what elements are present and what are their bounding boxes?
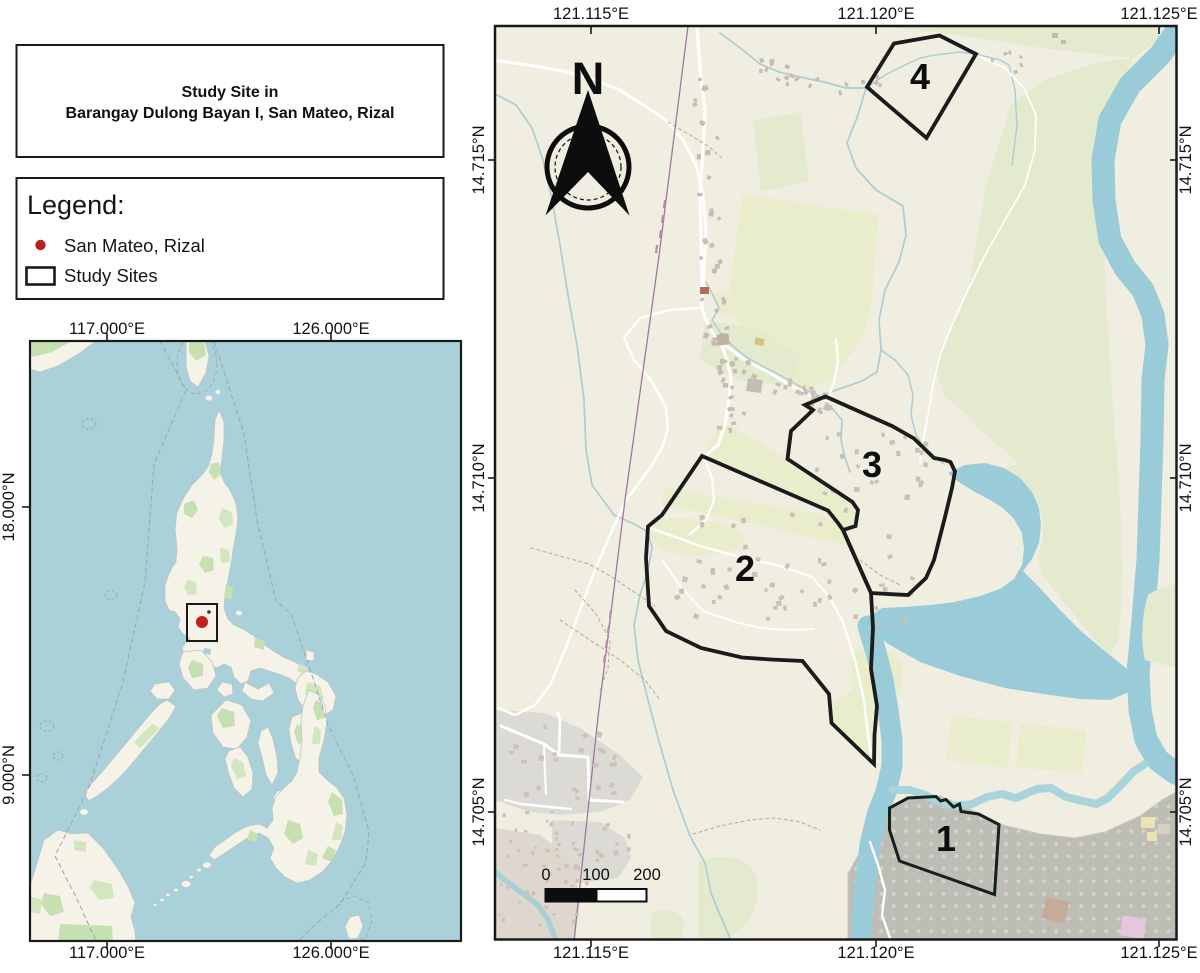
svg-text:121.115°E: 121.115°E [553,944,629,962]
svg-text:2: 2 [735,548,755,589]
svg-text:14.715°N: 14.715°N [470,126,488,195]
svg-text:14.715°N: 14.715°N [1177,126,1195,195]
svg-text:126.000°E: 126.000°E [292,320,369,338]
svg-text:San Mateo, Rizal: San Mateo, Rizal [64,235,205,256]
svg-text:3: 3 [862,444,882,485]
svg-text:121.120°E: 121.120°E [837,5,914,23]
svg-text:121.125°E: 121.125°E [1120,944,1197,962]
svg-text:Barangay Dulong Bayan I, San M: Barangay Dulong Bayan I, San Mateo, Riza… [66,105,395,122]
svg-text:14.710°N: 14.710°N [1177,444,1195,513]
svg-text:0: 0 [541,866,550,884]
svg-text:100: 100 [582,866,610,884]
svg-text:14.705°N: 14.705°N [1177,778,1195,847]
svg-text:126.000°E: 126.000°E [292,944,369,962]
svg-text:117.000°E: 117.000°E [69,944,145,962]
svg-text:14.705°N: 14.705°N [470,778,488,847]
svg-text:Legend:: Legend: [27,190,125,220]
svg-text:200: 200 [633,866,661,884]
svg-text:1: 1 [936,818,956,859]
svg-text:121.125°E: 121.125°E [1120,5,1197,23]
svg-text:N: N [572,53,605,104]
svg-text:4: 4 [910,56,930,97]
svg-text:121.120°E: 121.120°E [837,944,914,962]
svg-text:121.115°E: 121.115°E [553,5,629,23]
svg-text:Study Site in: Study Site in [182,84,279,101]
svg-text:18.000°N: 18.000°N [0,473,18,542]
svg-text:9.000°N: 9.000°N [0,745,18,805]
svg-text:14.710°N: 14.710°N [470,444,488,513]
svg-text:Study Sites: Study Sites [64,265,158,286]
svg-text:117.000°E: 117.000°E [69,320,145,338]
